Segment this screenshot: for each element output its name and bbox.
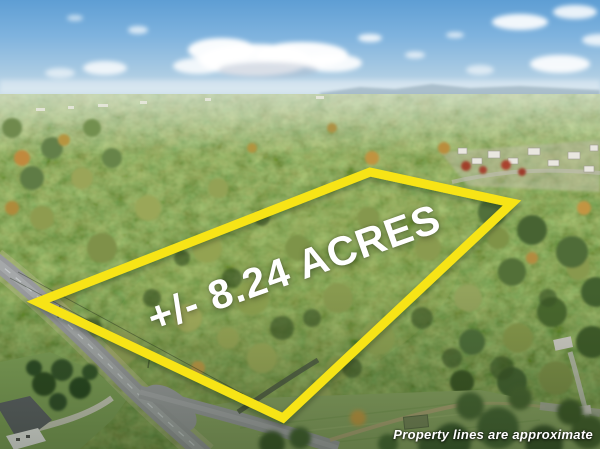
cloud: [466, 65, 494, 75]
cloud: [358, 34, 382, 42]
cloud-shadow: [218, 62, 318, 78]
cloud: [67, 15, 83, 21]
cloud: [173, 58, 223, 74]
cloud: [530, 55, 590, 73]
cloud: [128, 26, 148, 34]
cloud: [446, 32, 464, 38]
aerial-photo-canvas: [0, 0, 600, 449]
cloud: [45, 68, 75, 78]
cloud: [492, 14, 548, 30]
cloud: [405, 52, 425, 59]
cloud: [83, 61, 127, 75]
cloud: [553, 5, 597, 19]
vignette: [0, 290, 600, 449]
aerial-photo: +/- 8.24 ACRES Property lines are approx…: [0, 0, 600, 449]
